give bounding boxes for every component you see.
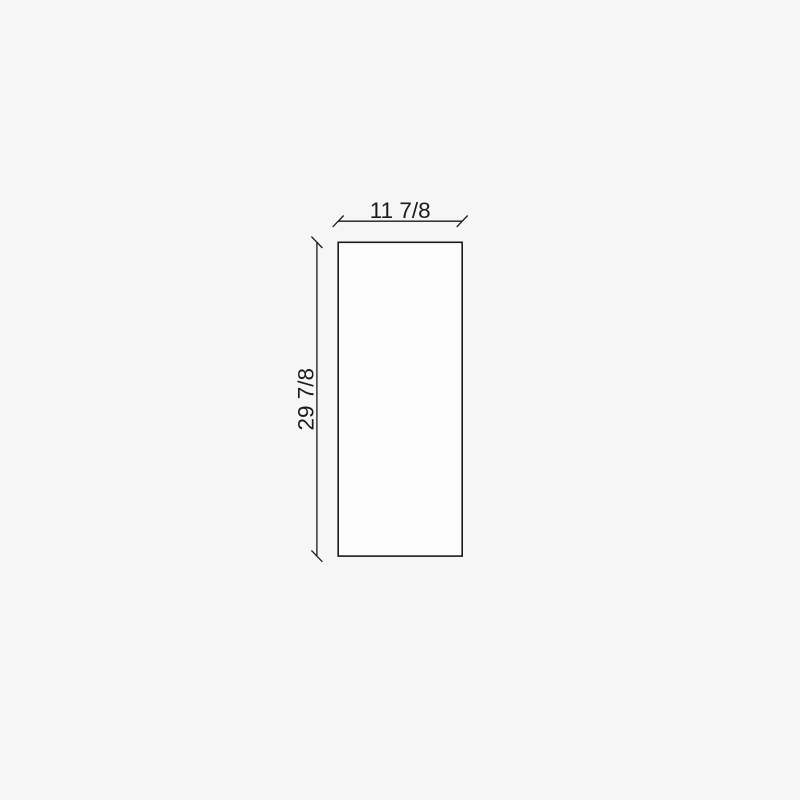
svg-text:29 7/8: 29 7/8: [294, 368, 319, 431]
svg-text:11 7/8: 11 7/8: [370, 198, 431, 223]
